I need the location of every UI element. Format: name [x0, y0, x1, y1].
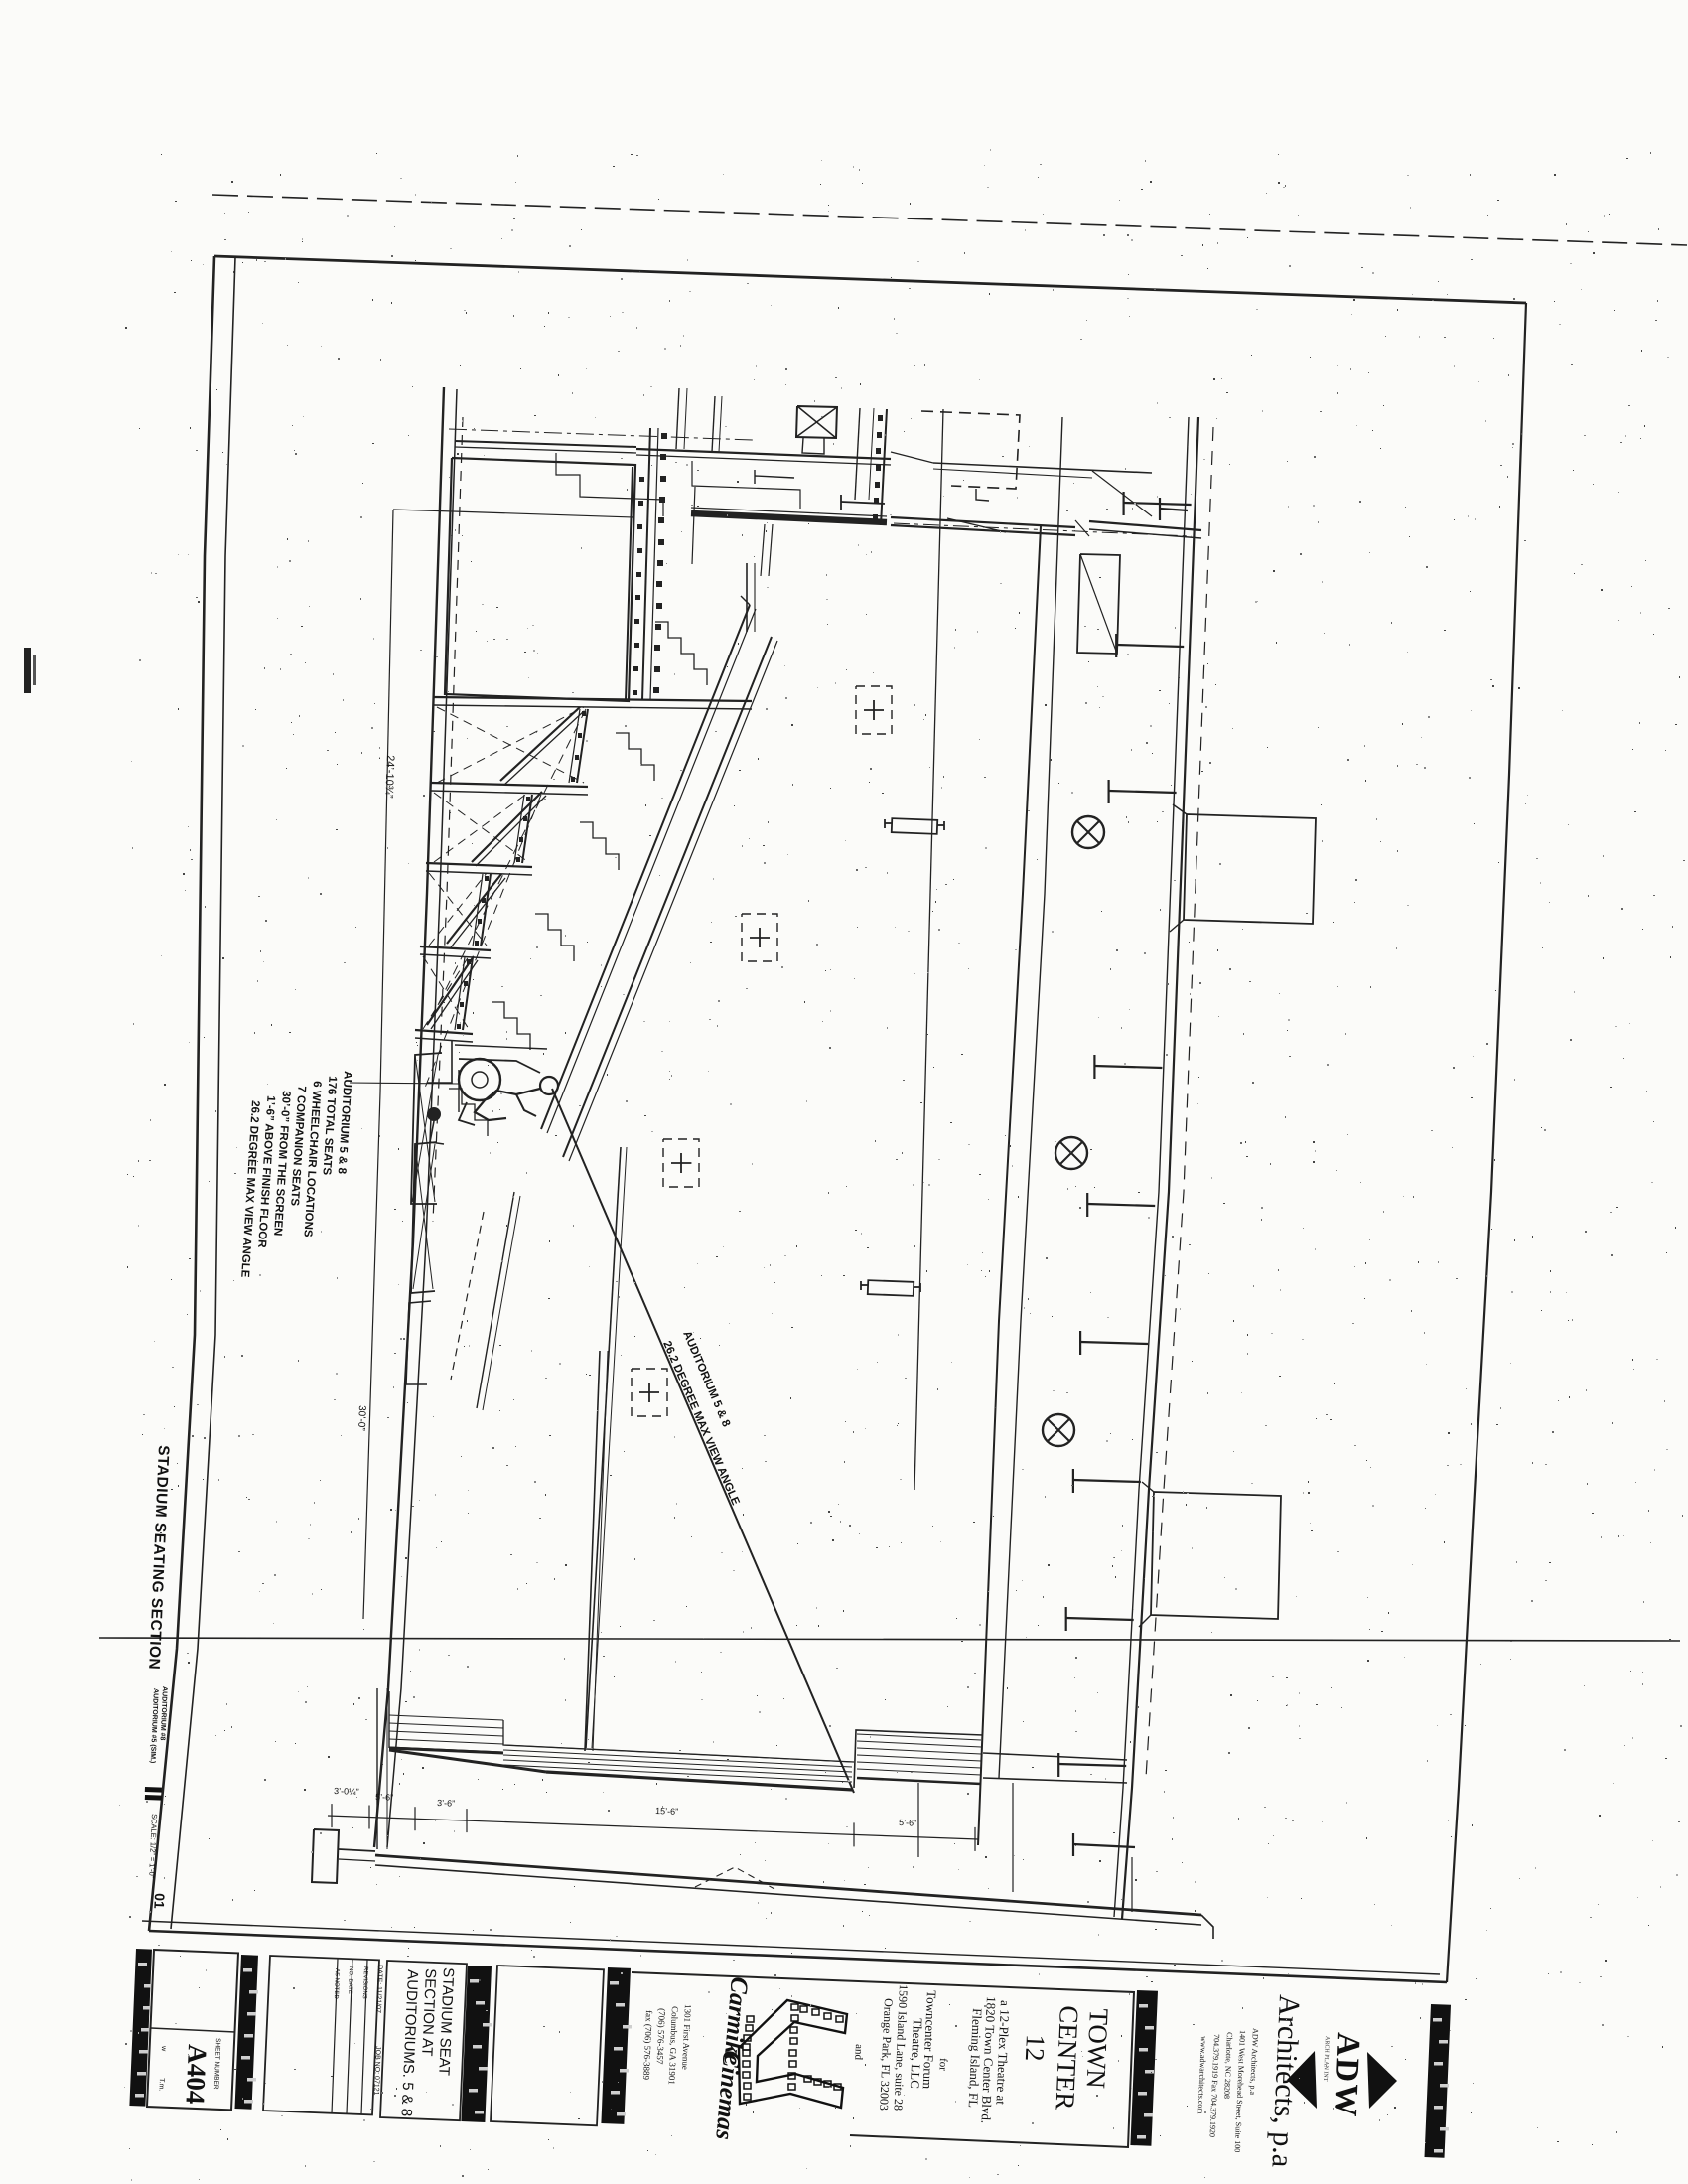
- svg-text:Theatre, LLC: Theatre, LLC: [908, 2018, 925, 2089]
- svg-text:3’-6”: 3’-6”: [437, 1798, 455, 1809]
- svg-text:24’-10¾”: 24’-10¾”: [382, 755, 396, 799]
- svg-text:and: and: [852, 2044, 865, 2061]
- svg-text:for: for: [936, 2058, 949, 2072]
- svg-text:5’-6”: 5’-6”: [899, 1818, 916, 1828]
- svg-text:REVISIONS: REVISIONS: [361, 1966, 368, 1999]
- svg-text:ADW: ADW: [1327, 2032, 1366, 2119]
- svg-text:TOWN: TOWN: [1080, 2008, 1113, 2090]
- svg-text:01: 01: [151, 1893, 168, 1909]
- svg-text:30’-0”: 30’-0”: [355, 1405, 367, 1431]
- svg-text:CENTER: CENTER: [1050, 2005, 1084, 2111]
- svg-text:A404: A404: [180, 2044, 212, 2105]
- svg-text:AS NOTED: AS NOTED: [333, 1968, 340, 2000]
- svg-text:NO. DATE: NO. DATE: [347, 1966, 353, 1994]
- svg-text:T.m.: T.m.: [157, 2078, 165, 2092]
- svg-text:12: 12: [1020, 2034, 1051, 2062]
- svg-text:3’-0¼”: 3’-0¼”: [334, 1786, 359, 1797]
- svg-text:15’-6”: 15’-6”: [655, 1806, 678, 1817]
